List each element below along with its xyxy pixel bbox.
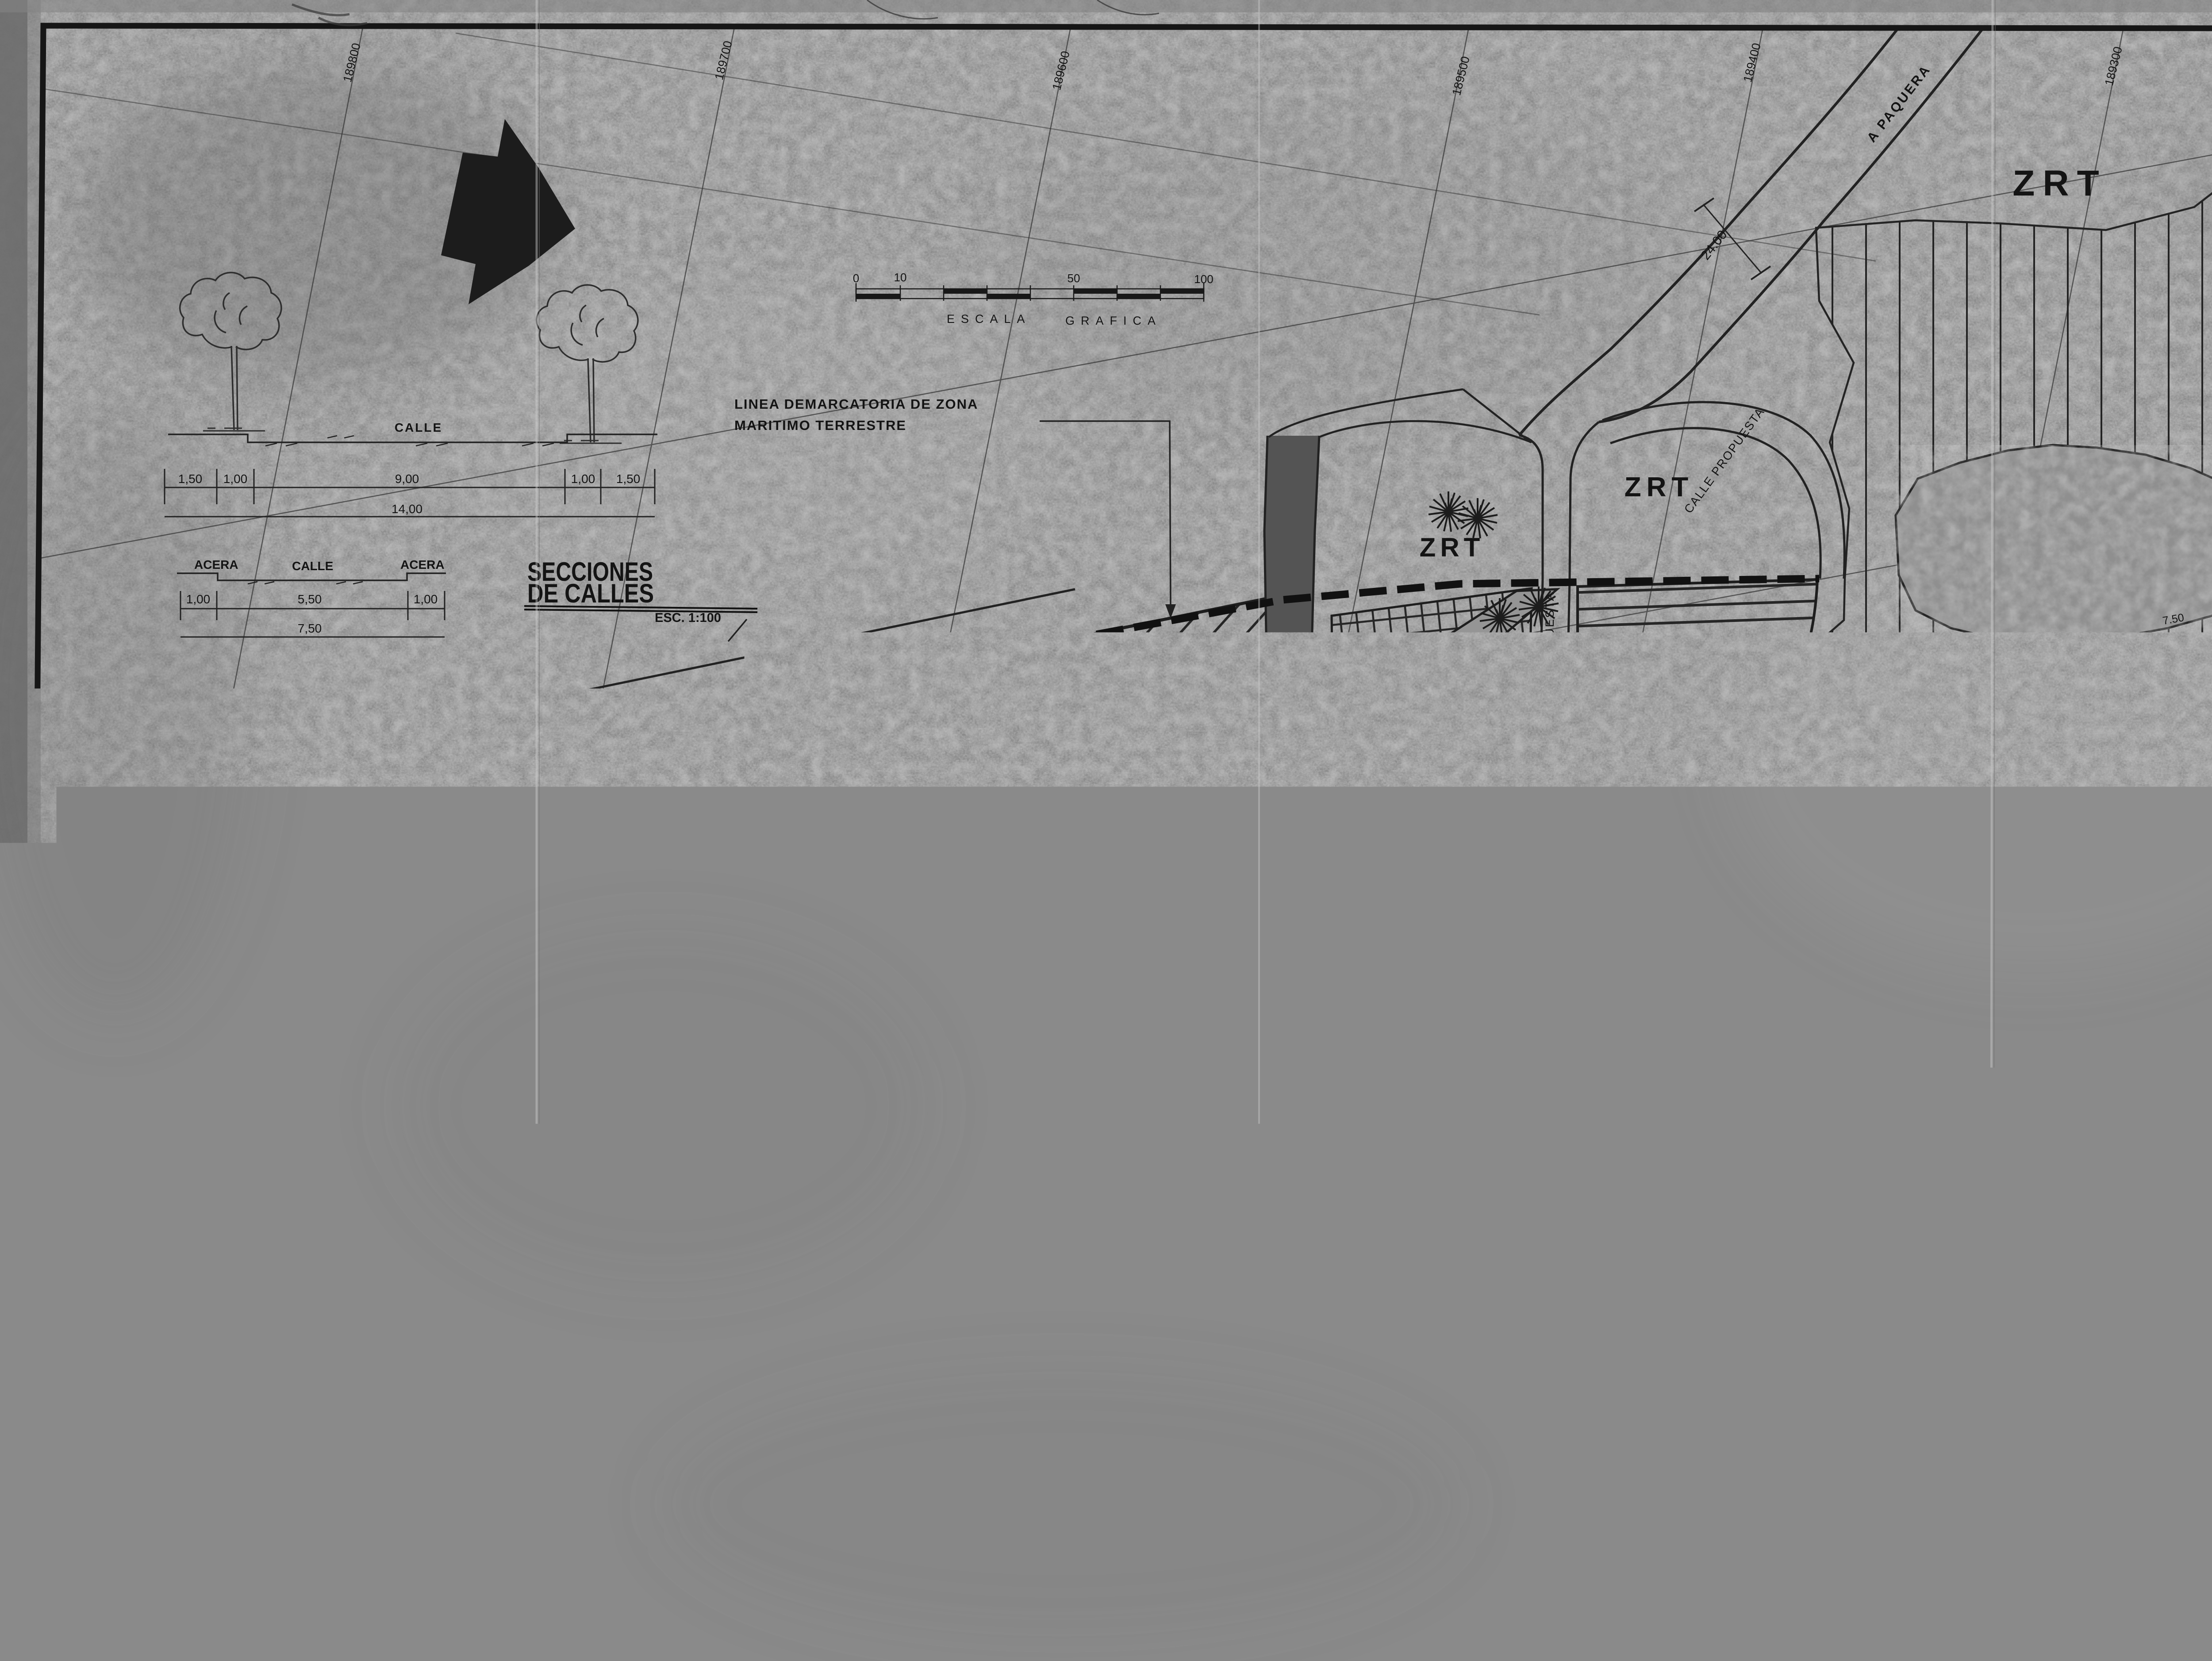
svg-text:ZV: ZV — [1252, 1028, 1272, 1046]
svg-text:P L A Y A: P L A Y A — [1266, 1228, 1460, 1241]
svg-text:I.G.N.: I.G.N. — [1760, 1137, 1791, 1150]
svg-text:50: 50 — [1068, 272, 1080, 285]
svg-text:CALLE: CALLE — [292, 559, 333, 573]
svg-text:0: 0 — [853, 272, 859, 285]
svg-text:PACIFICO: PACIFICO — [1350, 1572, 1629, 1595]
svg-text:1,00: 1,00 — [186, 592, 211, 606]
svg-text:P L A Y A: P L A Y A — [1814, 1258, 2008, 1272]
svg-text:LINEA DEMARCATORIA DE: LINEA DEMARCATORIA DE — [1685, 1415, 1882, 1431]
svg-text:ZRT: ZRT — [1420, 533, 1485, 562]
svg-text:ZAS: ZAS — [866, 873, 933, 905]
svg-text:ZRT: ZRT — [1624, 472, 1694, 503]
svg-text:14,00: 14,00 — [392, 502, 422, 516]
svg-text:I.G.N.: I.G.N. — [1256, 1145, 1288, 1158]
svg-text:ZP: ZP — [1478, 1143, 1517, 1171]
svg-text:MOJON № 3: MOJON № 3 — [1332, 1128, 1402, 1142]
svg-text:7.50: 7.50 — [1548, 723, 1569, 735]
svg-text:ZRT: ZRT — [661, 1000, 729, 1032]
svg-text:100: 100 — [1194, 272, 1213, 286]
svg-text:ZV: ZV — [1382, 675, 1403, 694]
svg-text:I.G.N.: I.G.N. — [1343, 1144, 1374, 1157]
svg-text:ZT: ZT — [991, 780, 1035, 813]
svg-text:BAHIA: BAHIA — [835, 1464, 1113, 1487]
svg-text:ZSC: ZSC — [1123, 710, 1195, 744]
svg-text:ZMI: ZMI — [405, 970, 470, 1001]
svg-text:10: 10 — [894, 271, 907, 284]
svg-text:ESCALA: ESCALA — [947, 312, 1031, 326]
svg-text:7.50: 7.50 — [1731, 721, 1752, 733]
svg-text:ACERA: ACERA — [194, 558, 238, 572]
svg-text:ZCS: ZCS — [1365, 1001, 1434, 1033]
svg-text:CALLE: CALLE — [395, 421, 442, 434]
svg-text:7,50: 7,50 — [298, 621, 322, 635]
svg-text:ACERA: ACERA — [400, 558, 445, 572]
svg-text:ESC. 1:100: ESC. 1:100 — [655, 611, 721, 625]
svg-text:MOJON № 2: MOJON № 2 — [1234, 1130, 1305, 1143]
svg-text:ZP: ZP — [1073, 1146, 1112, 1174]
svg-text:CALLE PROPUESTA: CALLE PROPUESTA — [1543, 591, 1556, 725]
svg-text:TAMBOR: TAMBOR — [1286, 1471, 1526, 1494]
svg-text:ZT: ZT — [1621, 781, 1664, 811]
svg-text:1,50: 1,50 — [616, 472, 641, 486]
svg-text:1,00: 1,00 — [414, 592, 438, 606]
svg-text:OCEANO: OCEANO — [555, 1567, 924, 1590]
svg-text:9,00: 9,00 — [395, 472, 419, 486]
svg-text:1,00: 1,00 — [223, 472, 248, 486]
svg-text:GRAFICA: GRAFICA — [1065, 314, 1162, 327]
svg-text:50 MTS INALIENABLES: 50 MTS INALIENABLES — [1685, 1436, 1855, 1451]
svg-text:MOJON № 4: MOJON № 4 — [1747, 1121, 1817, 1134]
svg-text:ZRT: ZRT — [2012, 163, 2107, 203]
svg-text:ZMI: ZMI — [2129, 778, 2200, 812]
svg-text:5,50: 5,50 — [298, 592, 322, 606]
svg-text:MOJON № 1: MOJON № 1 — [967, 1139, 1037, 1153]
svg-text:LINEA DEMARCATORIA DE ZONA: LINEA DEMARCATORIA DE ZONA — [734, 396, 978, 412]
svg-text:ZCS: ZCS — [1332, 629, 1391, 658]
svg-text:DE CALLES: DE CALLES — [527, 579, 654, 608]
svg-text:1,50: 1,50 — [178, 472, 203, 486]
svg-text:MARITIMO TERRESTRE: MARITIMO TERRESTRE — [734, 418, 906, 433]
svg-text:P L A Y A: P L A Y A — [549, 1271, 743, 1285]
svg-text:1,00: 1,00 — [571, 472, 595, 486]
svg-text:ZT: ZT — [1088, 1004, 1138, 1040]
